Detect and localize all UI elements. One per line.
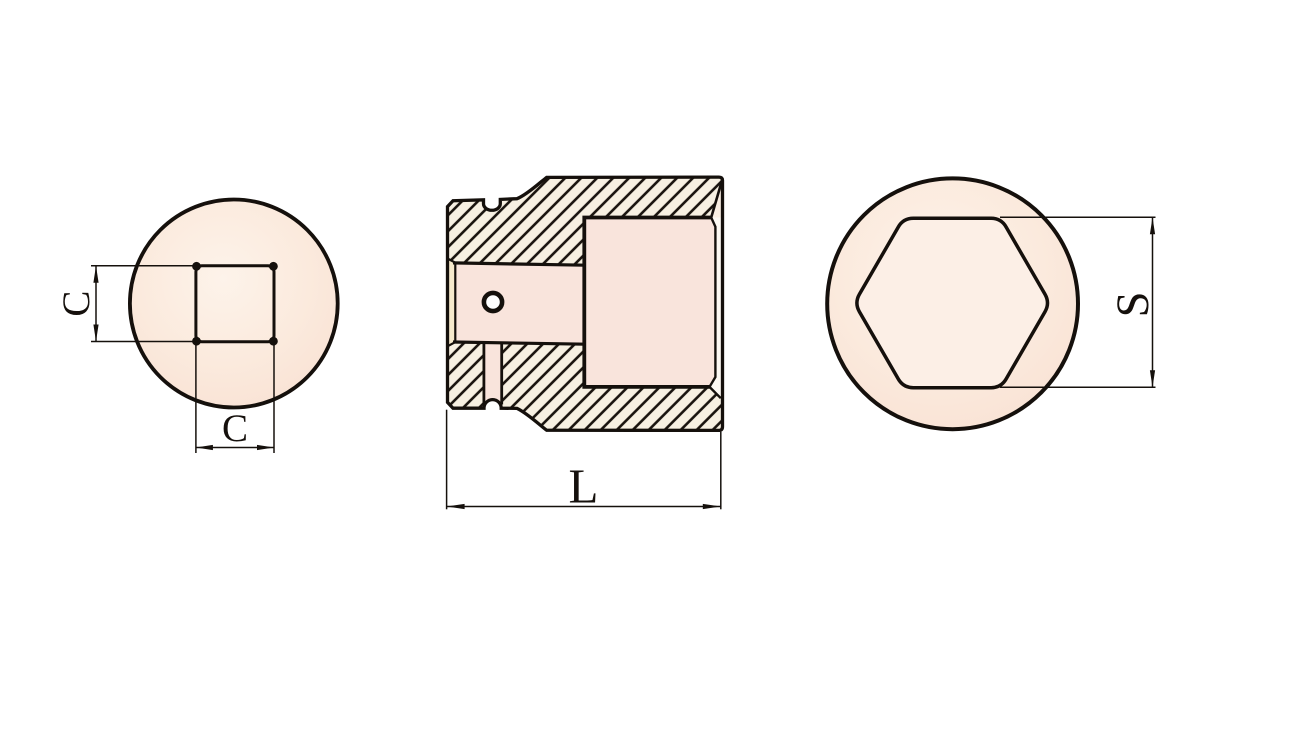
svg-text:C: C — [55, 291, 98, 317]
svg-text:S: S — [1108, 291, 1159, 317]
svg-text:C: C — [222, 407, 248, 450]
svg-text:L: L — [569, 459, 599, 514]
